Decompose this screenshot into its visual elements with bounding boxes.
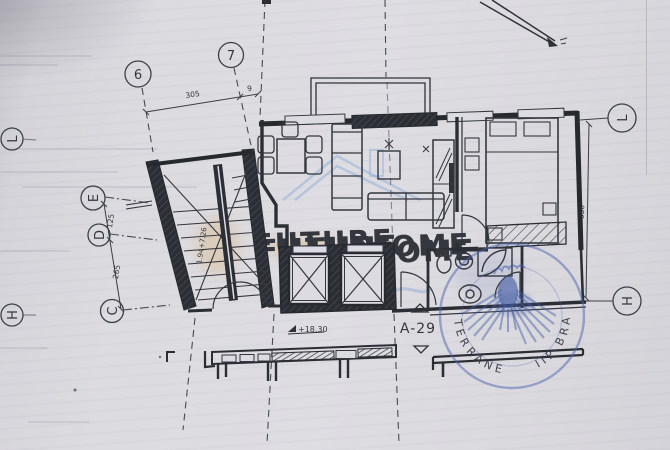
grid-label-6: 6 bbox=[134, 68, 142, 83]
section-hatch-band bbox=[358, 348, 392, 357]
grid-label-D: D bbox=[93, 230, 108, 240]
scanned-floor-plan-sheet: FUTURE HOME FUTURE HOME 6 7 L E D C bbox=[0, 0, 670, 450]
east-wall bbox=[577, 111, 581, 250]
dimension-e-d: 125 bbox=[105, 213, 116, 229]
triangle-down-marker bbox=[414, 346, 428, 353]
notary-stamp: TER RANE IIP BRA bbox=[440, 244, 584, 388]
stair-wall-top bbox=[147, 152, 252, 165]
grid-label-E: E bbox=[87, 194, 102, 202]
section-strip-left bbox=[167, 345, 396, 381]
living-room-furniture bbox=[258, 122, 444, 220]
washing-machine bbox=[459, 285, 481, 303]
eagle-tail bbox=[500, 308, 516, 332]
window-louver-box bbox=[352, 113, 437, 129]
unit-label: A-29 bbox=[400, 321, 436, 337]
grid-label-C: C bbox=[106, 306, 121, 315]
dining-chairs bbox=[258, 122, 322, 174]
nightstand bbox=[465, 156, 479, 170]
elevator-shaft-right bbox=[341, 253, 385, 305]
elevator-core bbox=[279, 243, 396, 313]
floor-plan-drawing: FUTURE HOME FUTURE HOME 6 7 L E D C bbox=[0, 0, 670, 450]
dimension-top-span: 305 bbox=[185, 89, 201, 100]
coffee-table bbox=[378, 151, 400, 179]
leader-arrow bbox=[480, 0, 567, 47]
elevator-shaft-left bbox=[289, 254, 329, 304]
grid-label-L: L bbox=[6, 135, 21, 143]
stair-wall-tie bbox=[126, 201, 152, 209]
grid-label-7: 7 bbox=[227, 49, 235, 64]
stamp-arc-text: TER RANE IIP BRA bbox=[451, 313, 573, 377]
grid-label-H: H bbox=[6, 310, 21, 320]
dimension-d-c: 265 bbox=[111, 264, 122, 280]
elevation-marker: +18.30 bbox=[288, 325, 328, 334]
stair-run-note: 1.94+7.26 bbox=[195, 226, 208, 264]
dining-table bbox=[277, 139, 305, 173]
grid-label-L-right: L bbox=[616, 114, 631, 122]
grid-label-H-right: H bbox=[621, 296, 636, 306]
nightstand bbox=[465, 138, 479, 152]
svg-text:BRA: BRA bbox=[553, 313, 574, 348]
staircase: 1.94+7.26 bbox=[126, 149, 274, 310]
dimension-top-offset: 9 bbox=[247, 84, 253, 94]
paper-speck bbox=[74, 389, 77, 392]
paper-speck bbox=[159, 356, 161, 358]
section-strip-right bbox=[433, 349, 583, 377]
stamp-text-right: BRA bbox=[553, 313, 574, 348]
section-end-bracket bbox=[167, 352, 175, 362]
axis-top-mark bbox=[262, 0, 271, 4]
svg-text:IIP: IIP bbox=[533, 345, 560, 370]
section-hatch-band bbox=[272, 351, 334, 361]
plant-marks bbox=[385, 138, 429, 152]
stamp-text-bottom-right: IIP bbox=[533, 345, 560, 370]
